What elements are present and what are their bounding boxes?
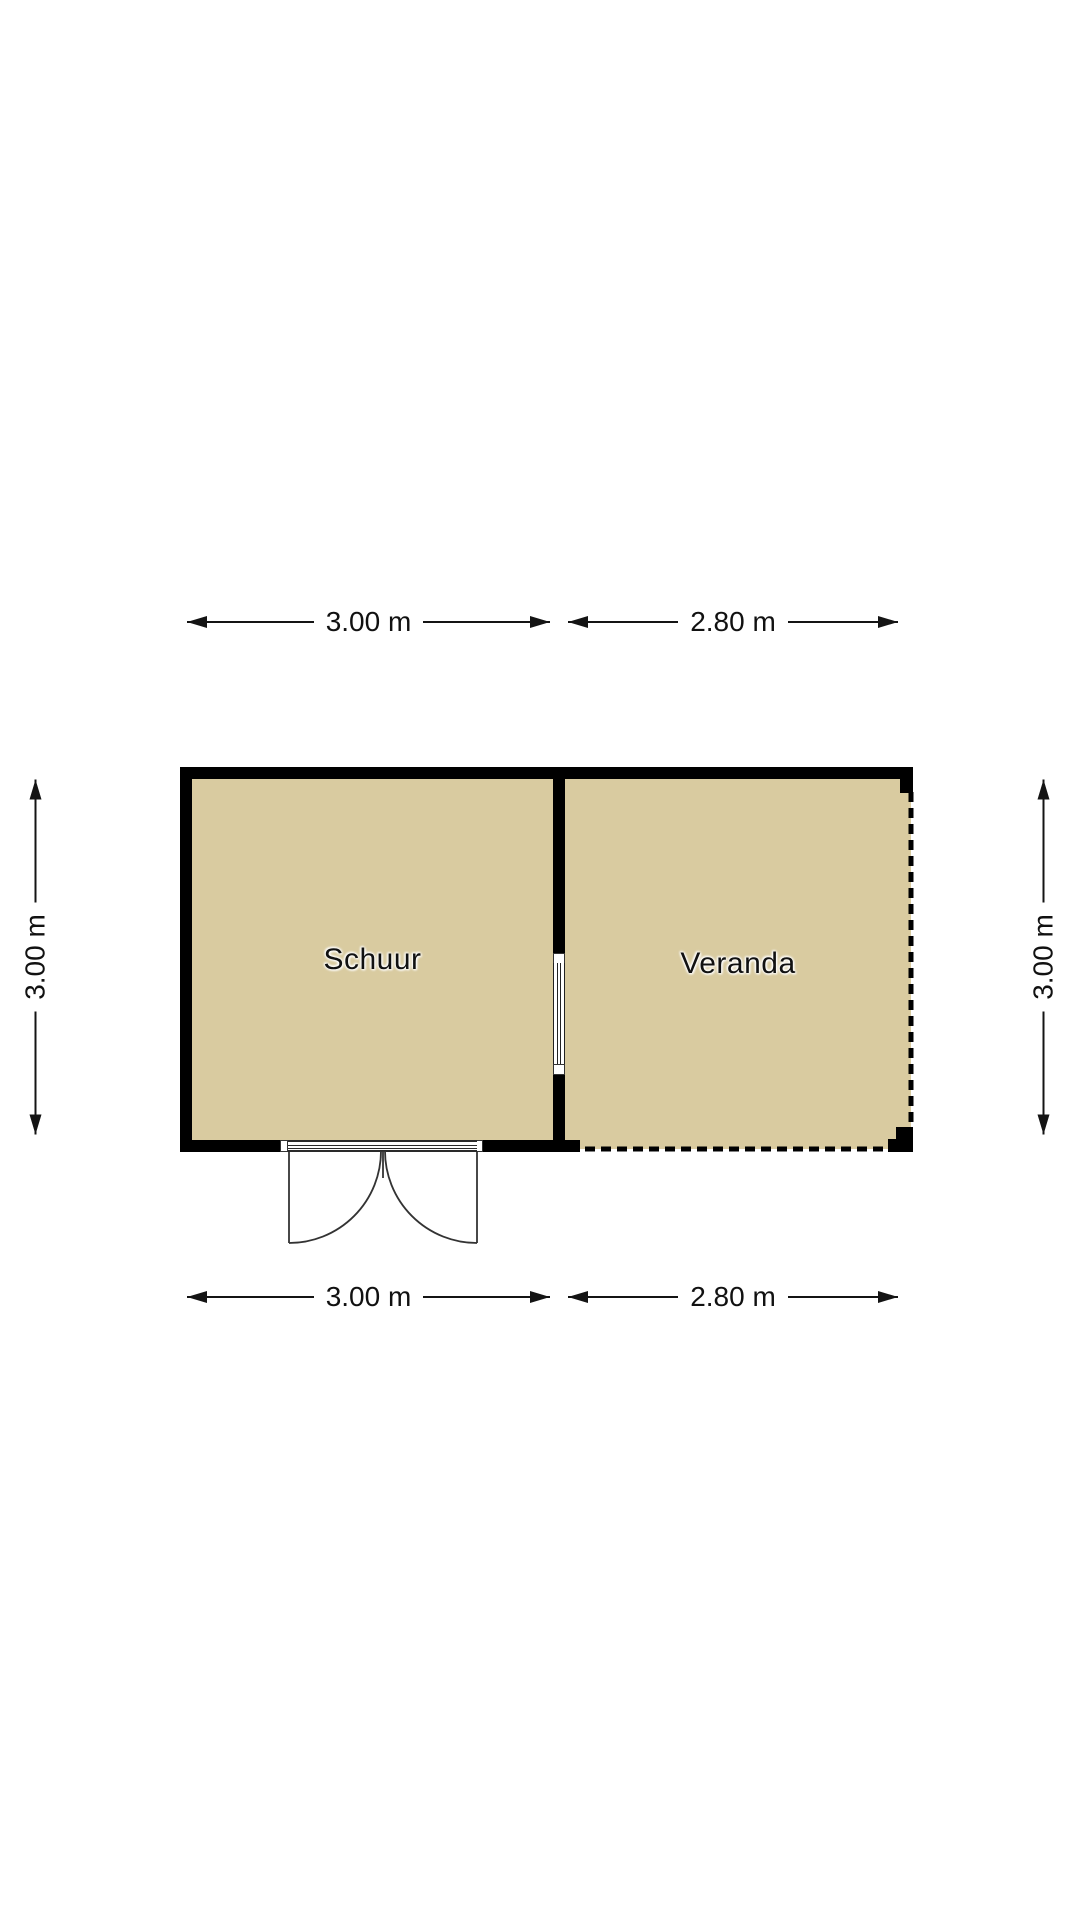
dim-bottom-veranda-width: 2.80 m	[568, 1282, 898, 1312]
schuur-room: Schuur	[192, 779, 553, 1140]
dim-arrow-line	[423, 621, 550, 623]
interior-wall-upper	[553, 779, 565, 953]
dim-top-schuur-width: 3.00 m	[187, 607, 550, 637]
dim-label: 3.00 m	[1029, 914, 1059, 1000]
door-swing-arc-right	[385, 1151, 477, 1243]
dim-arrow-line	[568, 621, 678, 623]
dim-arrow-line	[423, 1296, 550, 1298]
dim-label: 3.00 m	[326, 607, 412, 637]
dim-bottom-schuur-width: 3.00 m	[187, 1282, 550, 1312]
glazed-door-panel	[553, 963, 565, 1065]
dim-label: 2.80 m	[690, 1282, 776, 1312]
room-label-veranda: Veranda	[680, 947, 795, 981]
dim-arrow-line	[788, 621, 898, 623]
left-wall	[180, 767, 192, 1152]
dim-arrow-line	[187, 621, 314, 623]
dim-arrow-line	[35, 1012, 37, 1135]
door-jamb-right	[476, 1140, 483, 1152]
dim-label: 3.00 m	[21, 914, 51, 1000]
dim-arrow-line	[35, 779, 37, 902]
room-label-schuur: Schuur	[323, 943, 421, 977]
glazed-door-frame-bottom	[553, 1064, 565, 1075]
bottom-wall-left	[180, 1140, 280, 1152]
dim-arrow-line	[1043, 1012, 1045, 1135]
dim-arrow-line	[187, 1296, 314, 1298]
dim-right-height: 3.00 m	[1029, 780, 1059, 1135]
door-jamb-left	[280, 1140, 288, 1152]
door-swing-arc-left	[289, 1151, 381, 1243]
dim-arrow-line	[1043, 779, 1045, 902]
interior-wall-lower	[553, 1075, 565, 1152]
veranda-room: Veranda	[565, 779, 911, 1149]
dim-arrow-line	[788, 1296, 898, 1298]
dim-arrow-line	[568, 1296, 678, 1298]
dim-label: 3.00 m	[326, 1282, 412, 1312]
dim-label: 2.80 m	[690, 607, 776, 637]
double-door-threshold	[288, 1140, 477, 1152]
dim-left-height: 3.00 m	[21, 780, 51, 1135]
top-wall	[180, 767, 913, 779]
dim-top-veranda-width: 2.80 m	[568, 607, 898, 637]
